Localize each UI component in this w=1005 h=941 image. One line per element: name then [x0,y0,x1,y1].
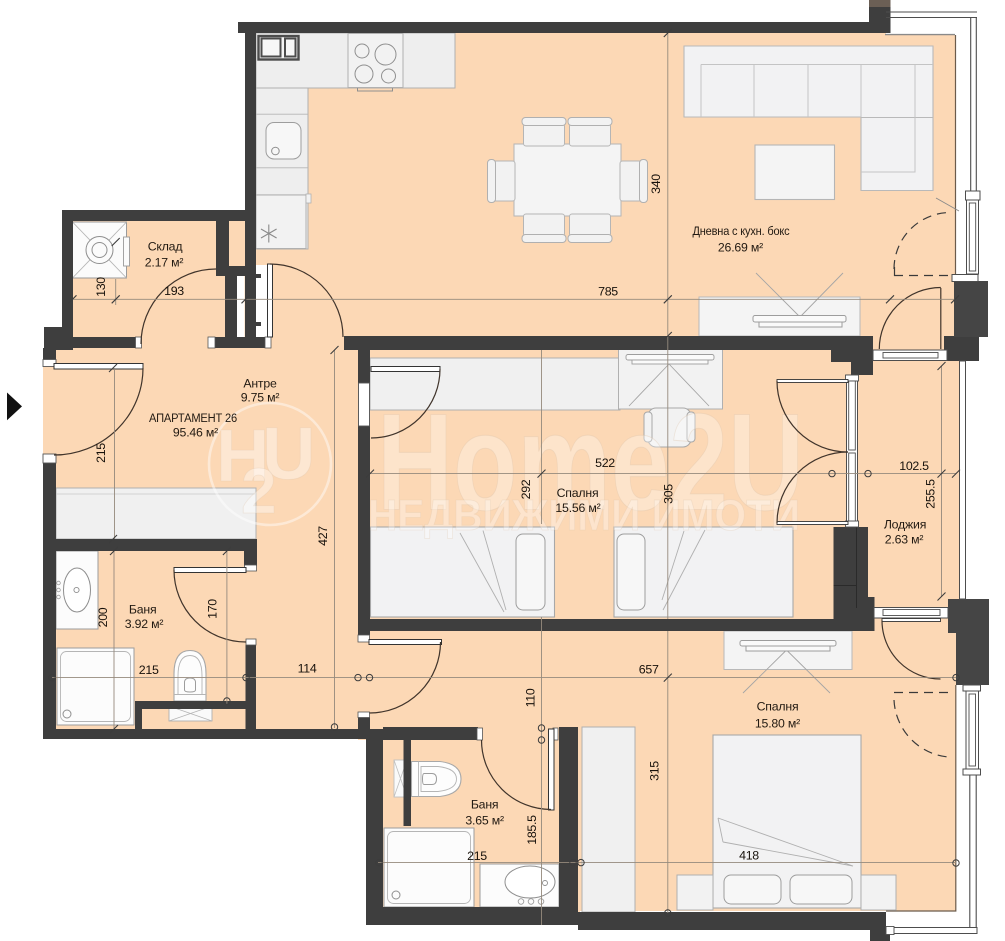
svg-text:657: 657 [639,663,659,677]
svg-text:785: 785 [598,285,618,299]
svg-text:292: 292 [519,479,533,499]
svg-text:130: 130 [94,277,108,297]
svg-text:2.17 м²: 2.17 м² [145,256,184,270]
svg-text:15.56 м²: 15.56 м² [555,501,600,515]
svg-text:215: 215 [467,849,487,863]
svg-text:Баня: Баня [471,798,499,812]
svg-text:522: 522 [595,456,615,470]
svg-text:Спалня: Спалня [557,486,599,500]
svg-text:340: 340 [649,174,663,194]
svg-text:2: 2 [241,455,277,527]
svg-text:418: 418 [739,849,759,863]
svg-text:2.63 м²: 2.63 м² [885,533,924,547]
svg-text:3.92 м²: 3.92 м² [125,617,164,631]
svg-text:95.46 м²: 95.46 м² [173,426,218,440]
svg-text:185.5: 185.5 [525,815,539,845]
svg-text:200: 200 [96,607,110,627]
svg-text:114: 114 [298,662,317,676]
svg-text:215: 215 [139,663,159,677]
svg-text:Баня: Баня [129,603,157,617]
svg-text:15.80 м²: 15.80 м² [755,717,800,731]
svg-text:9.75 м²: 9.75 м² [241,391,280,405]
svg-text:215: 215 [94,443,108,463]
svg-text:170: 170 [206,599,220,619]
svg-text:Спалня: Спалня [757,700,799,714]
svg-text:Антре: Антре [243,377,277,391]
svg-text:102.5: 102.5 [899,459,929,473]
svg-text:315: 315 [648,761,662,781]
svg-text:193: 193 [164,284,184,298]
svg-text:3.65 м²: 3.65 м² [465,814,504,828]
svg-text:255.5: 255.5 [924,479,938,509]
svg-text:427: 427 [316,526,330,546]
svg-text:26.69 м²: 26.69 м² [718,241,763,255]
svg-text:Склад: Склад [148,240,183,254]
svg-text:305: 305 [662,484,676,504]
svg-text:Лоджия: Лоджия [884,518,926,532]
svg-text:АПАРТАМЕНТ 26: АПАРТАМЕНТ 26 [149,411,237,425]
svg-text:110: 110 [523,688,537,707]
svg-text:Дневна с кухн. бокс: Дневна с кухн. бокс [693,224,790,238]
